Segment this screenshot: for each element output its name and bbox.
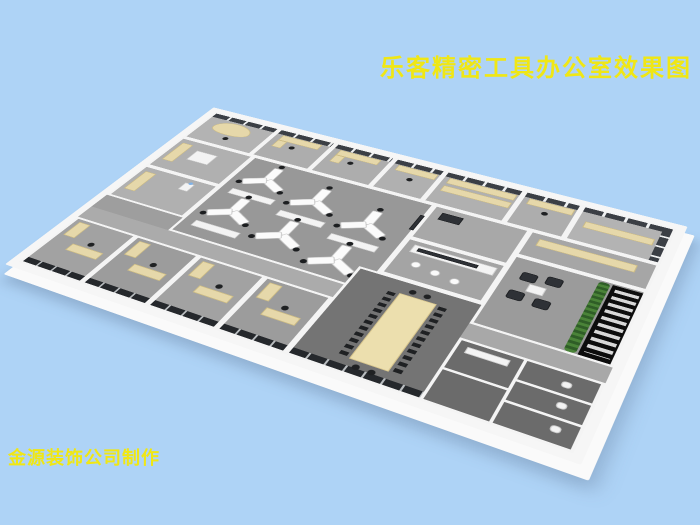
armchair <box>544 276 565 288</box>
bar-stool <box>428 269 442 277</box>
office-building-floorplan <box>5 107 688 465</box>
toilet-icon <box>549 424 563 434</box>
armchair <box>518 272 539 284</box>
office-chair <box>346 161 354 165</box>
desk <box>127 264 167 281</box>
studio-credit: 金源装饰公司制作 <box>8 444 160 470</box>
partition-wall <box>443 367 508 390</box>
tall-cabinet <box>188 261 215 279</box>
armchair <box>531 298 552 311</box>
partition-wall <box>516 379 592 406</box>
armchair <box>505 289 526 302</box>
tall-cabinet <box>124 241 151 258</box>
tall-cabinet <box>124 171 156 191</box>
office-chair <box>148 262 158 268</box>
toilet-icon <box>555 401 569 411</box>
desk-return <box>271 140 287 148</box>
conference-chair <box>422 294 432 300</box>
desk-return <box>329 155 345 164</box>
glass-front-icon <box>23 257 85 281</box>
tall-cabinet <box>63 222 90 238</box>
coffee-table <box>525 284 547 296</box>
tall-cabinet <box>256 282 283 301</box>
office-chair <box>540 211 549 216</box>
office-chair <box>86 242 96 247</box>
office-chair <box>221 137 229 141</box>
office-chair <box>405 177 413 181</box>
bar-stool <box>448 277 462 286</box>
bar-stool <box>409 261 423 269</box>
render-title: 乐客精密工具办公室效果图 <box>380 48 692 83</box>
glass-front-icon <box>85 278 150 303</box>
office-render-canvas: 乐客精密工具办公室效果图 金源装饰公司制作 <box>0 0 700 525</box>
office-chair <box>280 305 290 311</box>
small-table <box>186 151 218 165</box>
office-chair <box>214 284 224 290</box>
desk <box>65 244 103 260</box>
partition-wall <box>504 400 582 428</box>
desk <box>260 307 301 326</box>
glass-front-icon <box>219 324 287 351</box>
glass-front-icon <box>150 300 219 327</box>
toilet-icon <box>560 380 573 389</box>
conference-chair <box>408 289 418 295</box>
office-chair <box>287 146 295 150</box>
copier-icon <box>437 213 464 225</box>
partition-wall <box>489 360 527 423</box>
desk <box>193 285 234 303</box>
